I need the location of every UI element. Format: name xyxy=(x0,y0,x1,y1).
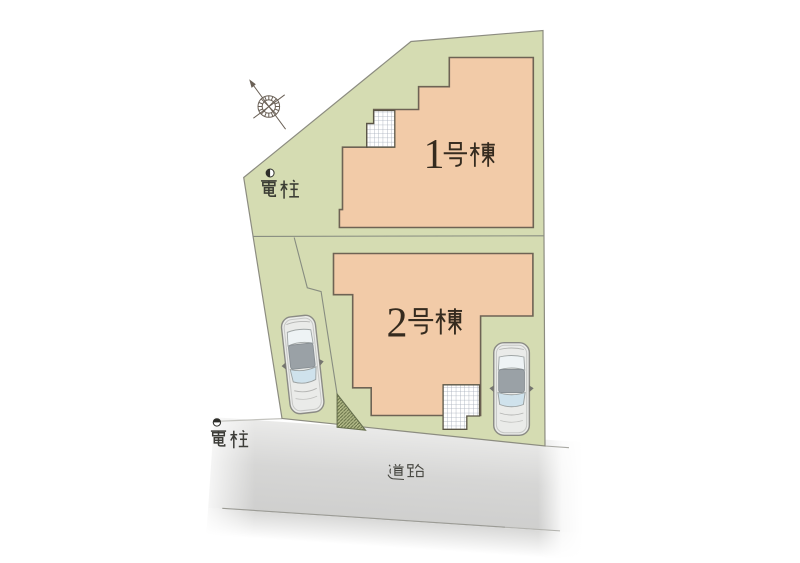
svg-text:2: 2 xyxy=(387,301,408,347)
svg-text:1: 1 xyxy=(424,132,445,178)
